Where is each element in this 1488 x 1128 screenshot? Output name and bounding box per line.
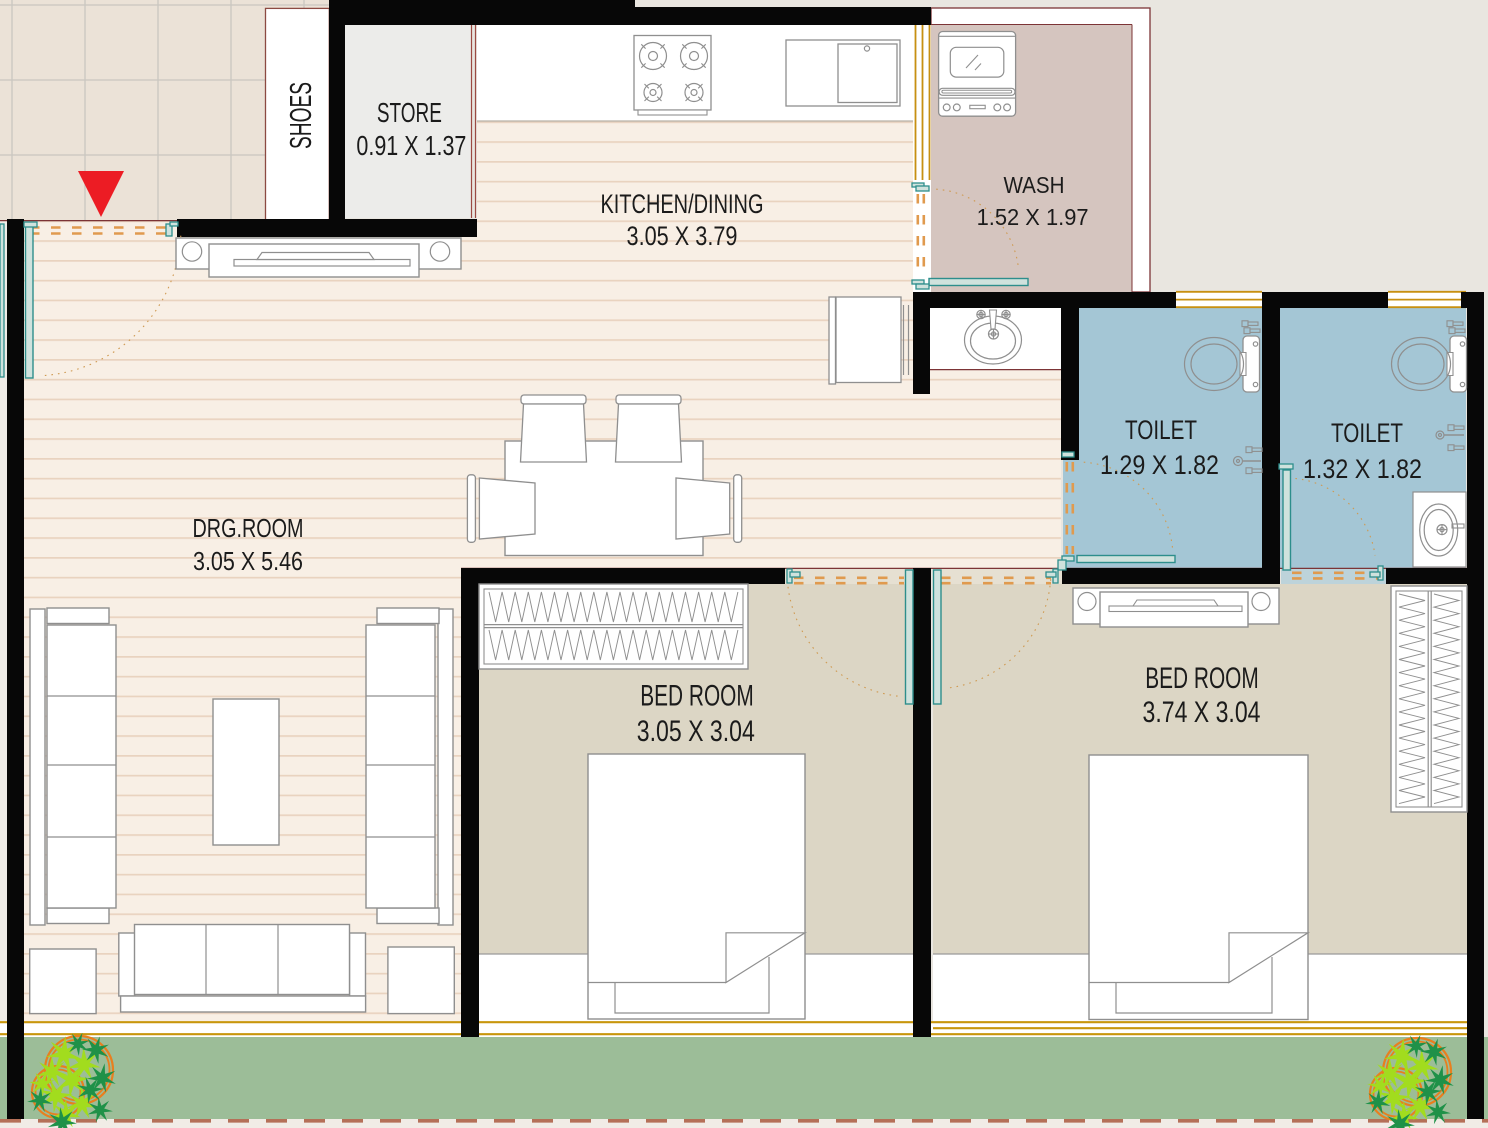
svg-text:1.29 X 1.82: 1.29 X 1.82 [1100,450,1219,480]
svg-text:3.05 X 3.04: 3.05 X 3.04 [637,715,755,748]
svg-text:DRG.ROOM: DRG.ROOM [193,513,304,543]
svg-text:3.05 X 3.79: 3.05 X 3.79 [627,221,738,251]
svg-text:1.32 X 1.82: 1.32 X 1.82 [1303,454,1422,484]
svg-text:BED ROOM: BED ROOM [640,680,754,713]
svg-text:KITCHEN/DINING: KITCHEN/DINING [601,189,764,219]
svg-text:0.91 X 1.37: 0.91 X 1.37 [356,130,466,161]
svg-text:3.74 X 3.04: 3.74 X 3.04 [1143,696,1261,729]
svg-text:BED ROOM: BED ROOM [1145,662,1259,695]
svg-text:SHOES: SHOES [283,82,318,149]
svg-text:STORE: STORE [377,97,442,128]
svg-text:3.05 X 5.46: 3.05 X 5.46 [193,546,303,576]
svg-text:1.52 X 1.97: 1.52 X 1.97 [977,204,1089,230]
svg-text:WASH: WASH [1004,172,1065,198]
svg-text:TOILET: TOILET [1125,415,1197,445]
svg-text:TOILET: TOILET [1331,418,1403,448]
